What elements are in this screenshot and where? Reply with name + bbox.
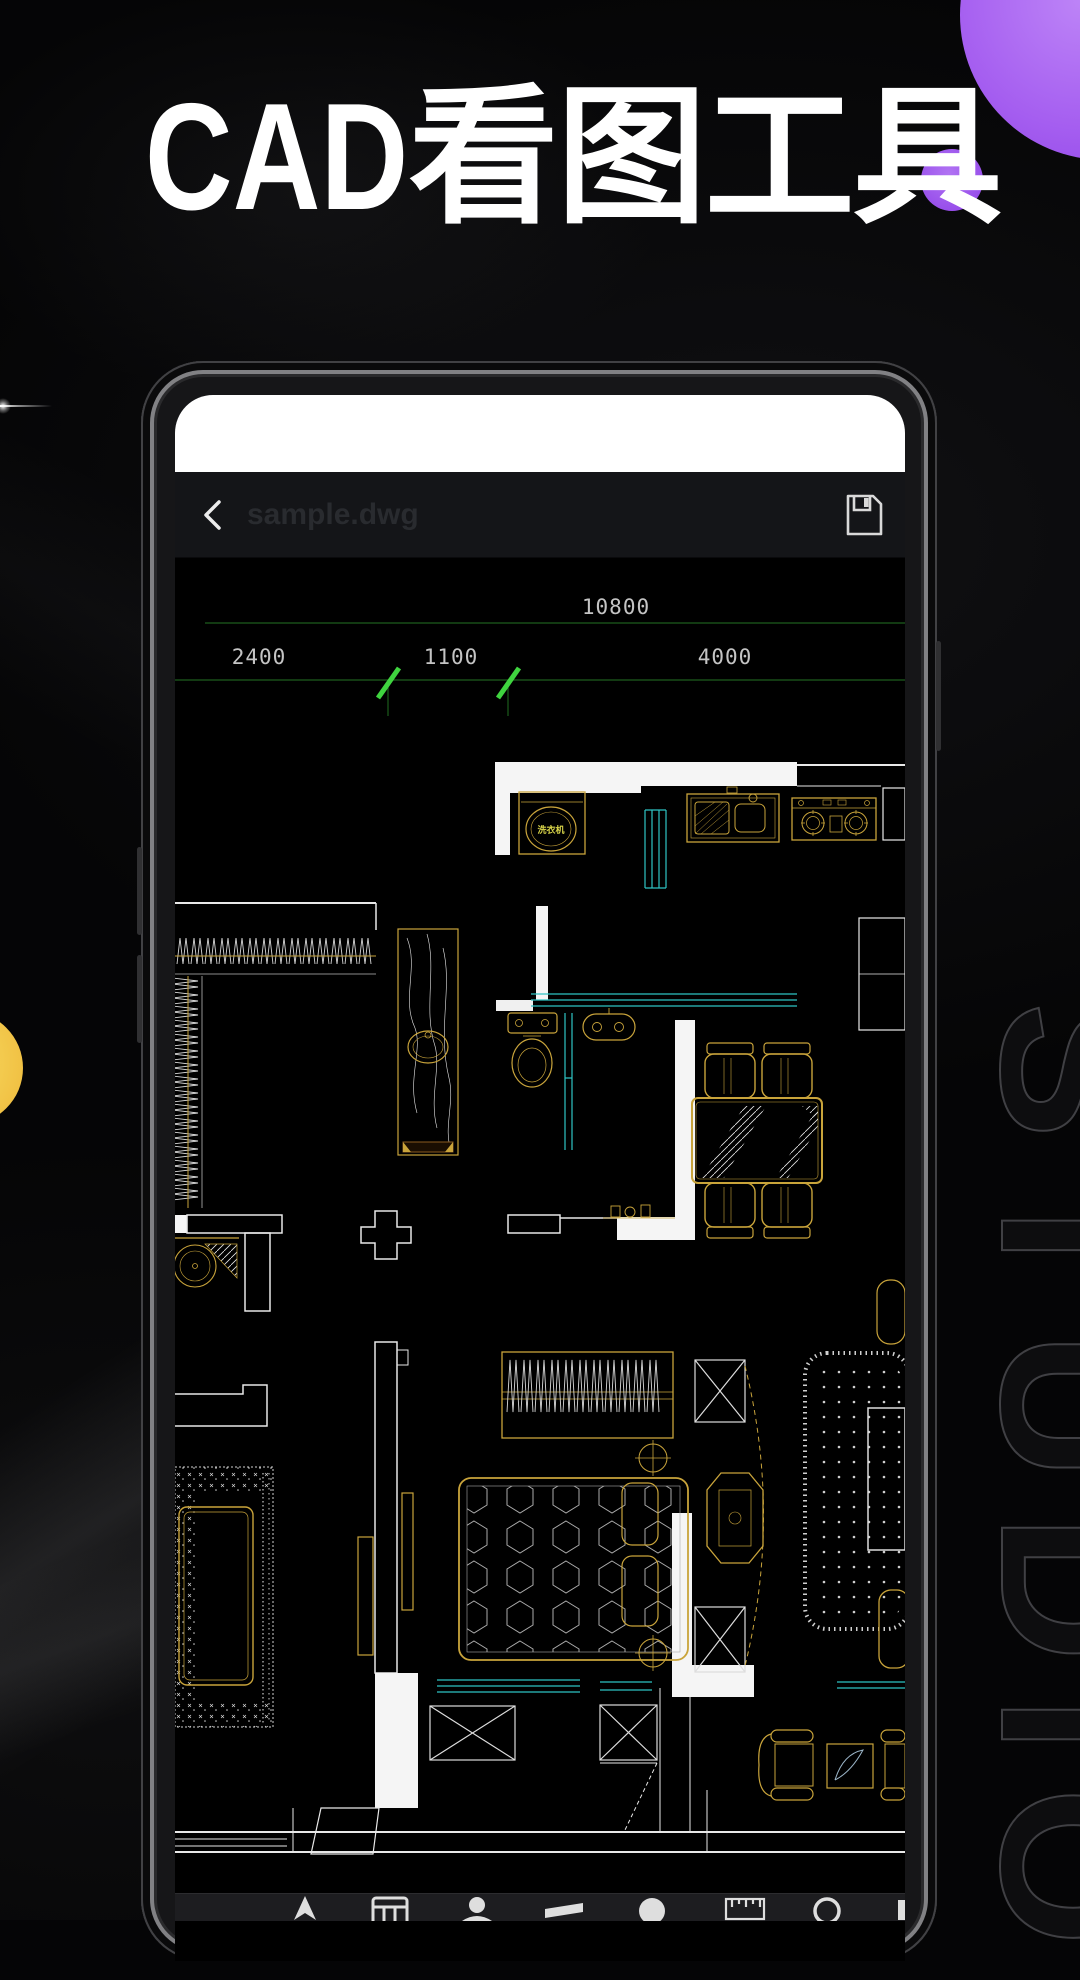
layers-icon[interactable]: [545, 1903, 583, 1918]
dimension-block: 10800 2400 1100 4000: [175, 595, 905, 716]
outlet-symbol: [583, 1008, 635, 1040]
dim-seg3: 4000: [698, 645, 753, 669]
dim-total: 10800: [582, 595, 650, 619]
armchairs: [759, 1730, 905, 1800]
studio-watermark: STUDIO: [970, 1002, 1080, 1980]
floor-plan: 10800 2400 1100 4000: [175, 558, 905, 1893]
door-leaves: [358, 1493, 413, 1655]
page-title-cjk: 看图工具: [409, 73, 1001, 241]
circle-icon[interactable]: [639, 1898, 665, 1921]
dining-set: [603, 1043, 905, 1344]
phone-screen: sample.dwg: [175, 395, 905, 1961]
washer-label: 洗衣机: [537, 824, 564, 835]
kitchen-sink: [687, 787, 779, 842]
light-streak: [0, 402, 52, 410]
washing-machine: 洗衣机: [519, 792, 585, 854]
app-toolbar: sample.dwg: [175, 472, 905, 558]
dim-seg2: 1100: [424, 645, 479, 669]
volume-down-button[interactable]: [137, 955, 142, 1043]
corner-basin: [175, 1238, 239, 1287]
dim-seg1: 2400: [232, 645, 287, 669]
phone-mockup: sample.dwg: [141, 361, 937, 1961]
back-icon[interactable]: [201, 498, 227, 532]
closet-hangers: [175, 938, 376, 1208]
cad-canvas[interactable]: 10800 2400 1100 4000: [175, 558, 905, 1893]
toilet: [508, 1013, 557, 1087]
bed-hexagon: [459, 1478, 688, 1660]
status-bar: [175, 395, 905, 472]
volume-up-button[interactable]: [137, 847, 142, 935]
gas-stove: [792, 798, 876, 840]
walls: [175, 762, 905, 1854]
power-button[interactable]: [936, 641, 941, 751]
page-title-latin: CAD: [145, 78, 408, 238]
bed-speckle: [175, 1467, 273, 1727]
vanity-panel: [398, 929, 458, 1155]
grid-icon[interactable]: [373, 1898, 407, 1921]
gear-icon[interactable]: [815, 1899, 839, 1921]
page-title: CAD看图工具: [0, 78, 1080, 238]
bottom-toolbar: [175, 1893, 905, 1921]
edge-partial-icon[interactable]: [898, 1900, 905, 1920]
bedroom-wardrobe: [502, 1352, 673, 1438]
living-rug: [805, 1353, 905, 1668]
user-icon[interactable]: [462, 1897, 492, 1921]
file-title: sample.dwg: [247, 498, 841, 532]
ruler-icon[interactable]: [726, 1899, 764, 1919]
navigate-icon[interactable]: [294, 1896, 316, 1920]
save-icon[interactable]: [841, 491, 887, 539]
balcony-chair: [877, 1280, 905, 1344]
